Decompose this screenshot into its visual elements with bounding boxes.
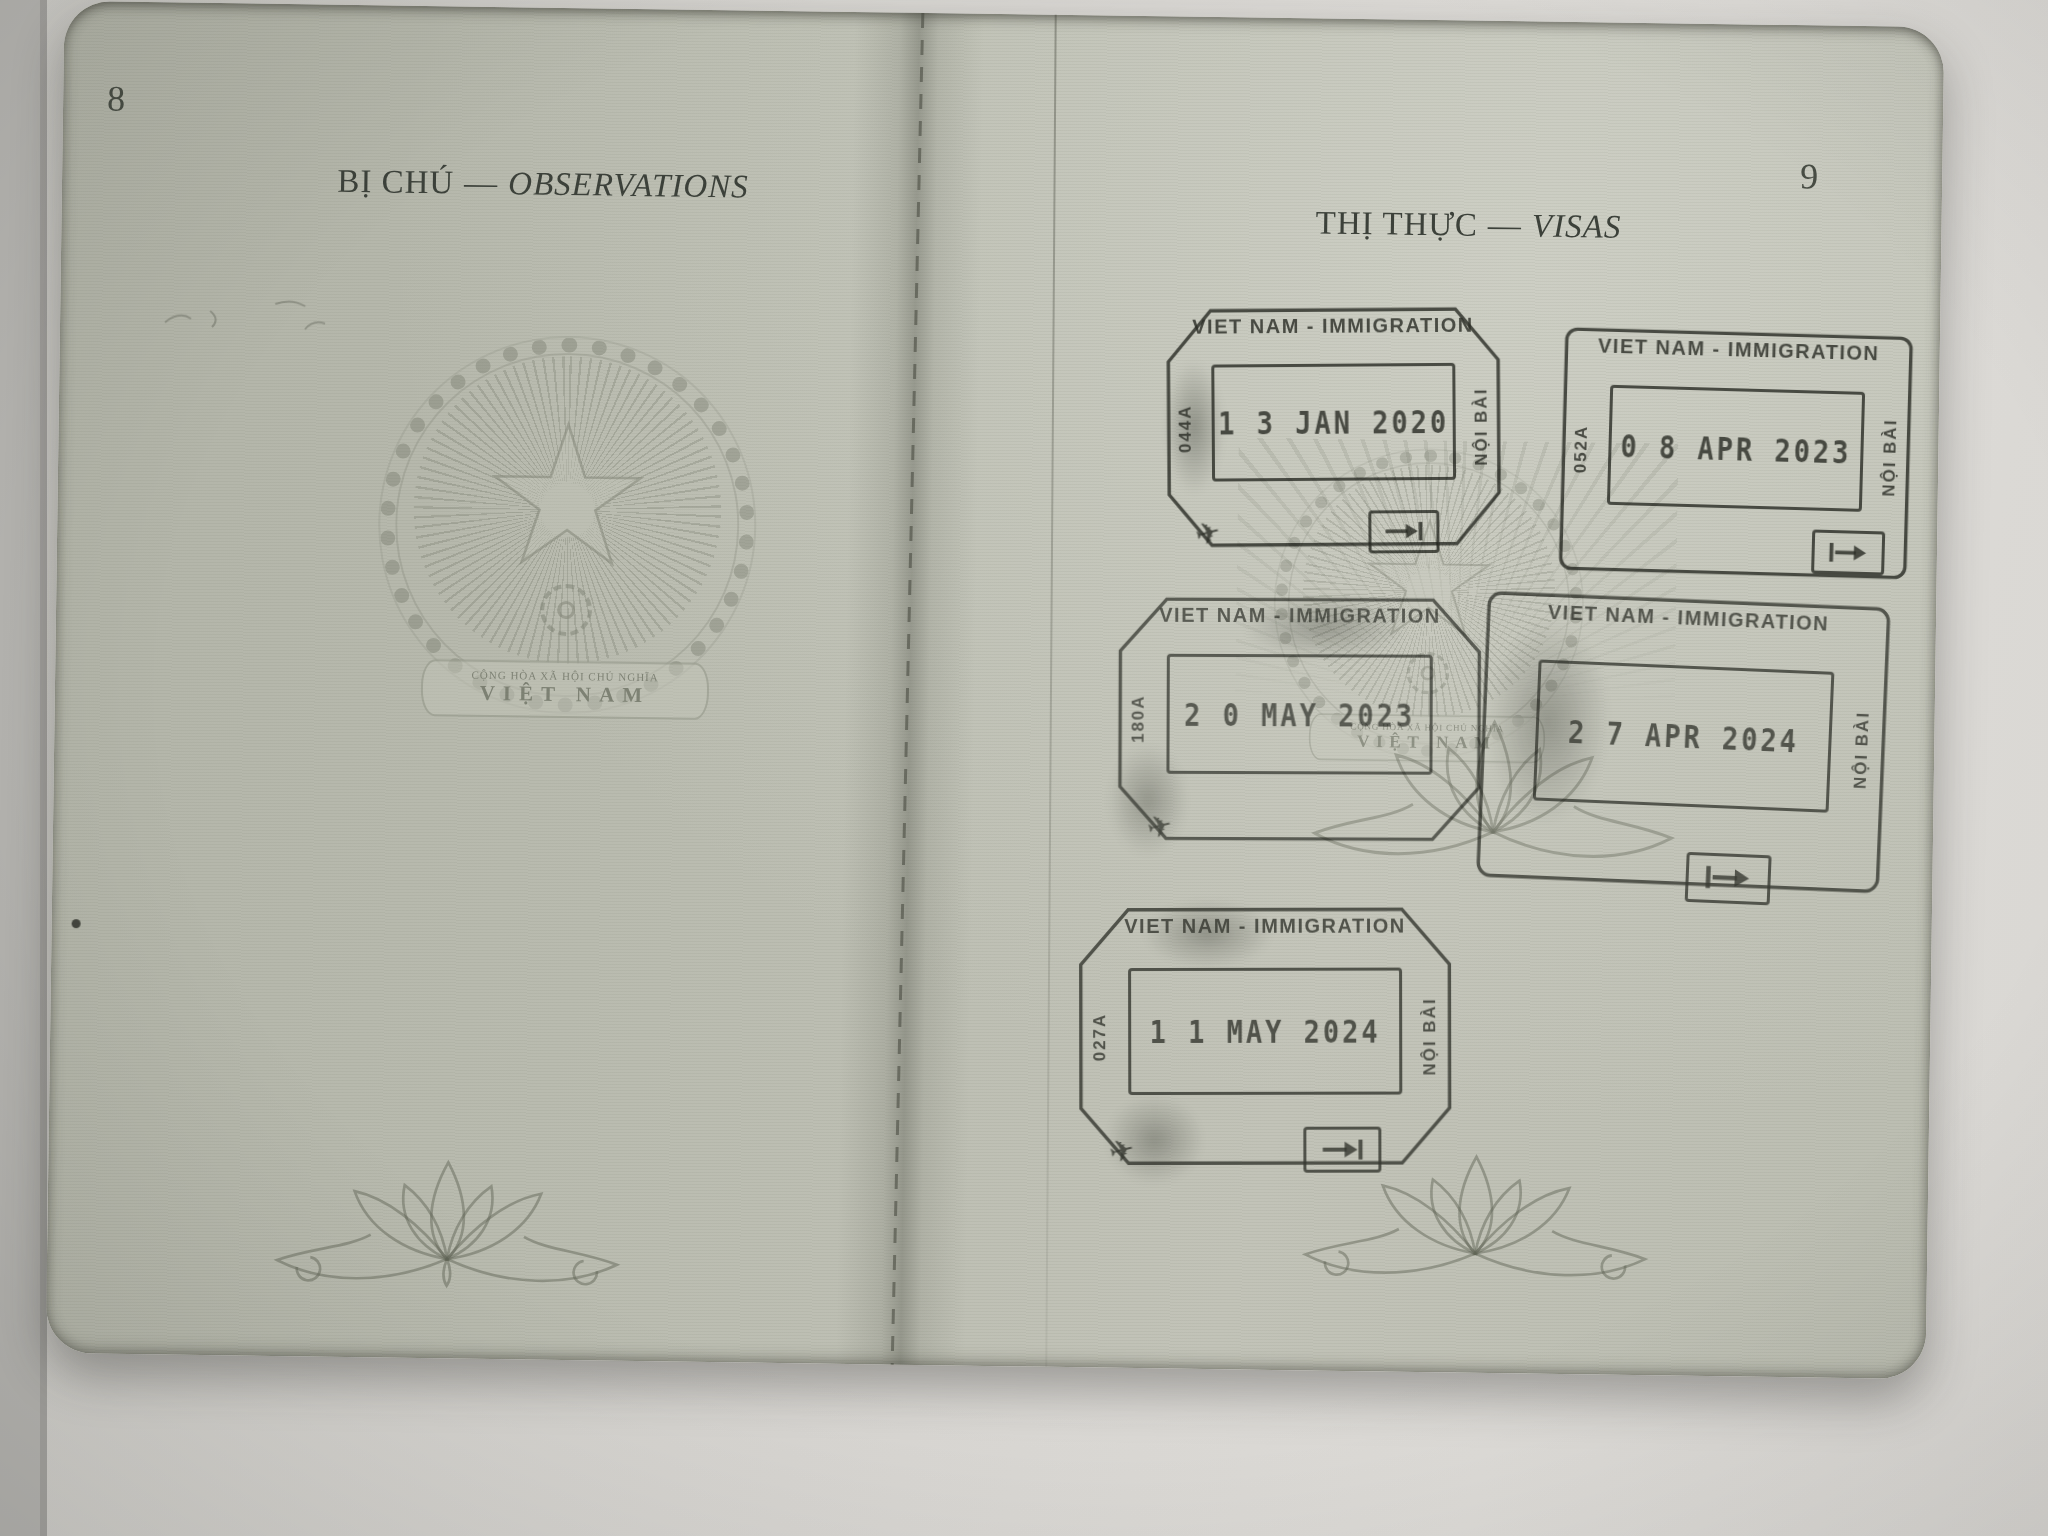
stamp-date-box: 1 1 MAY 2024 [1128, 967, 1402, 1095]
stamp-airport-right: NỘI BÀI [1471, 387, 1492, 465]
stamp-date-box: 2 0 MAY 2023 [1166, 654, 1433, 775]
page-number-8: 8 [107, 78, 126, 120]
page-title-observations: BỊ CHÚ—OBSERVATIONS [318, 163, 768, 206]
immigration-stamp: VIET NAM - IMMIGRATION 1 3 JAN 2020 044A… [1163, 304, 1505, 551]
page-title-vi: THỊ THỰC [1316, 204, 1479, 242]
stamp-date: 2 0 MAY 2023 [1184, 696, 1415, 733]
page-title-vi: BỊ CHÚ [337, 163, 454, 201]
stamp-airport-right: NỘI BÀI [1420, 997, 1440, 1075]
stamp-airport-right: NỘI BÀI [1851, 710, 1874, 789]
stamp-airport-right: NỘI BÀI [1879, 418, 1901, 497]
page-title-separator: — [454, 164, 508, 201]
stamp-date: 1 1 MAY 2024 [1150, 1013, 1381, 1050]
immigration-stamp: VIET NAM - IMMIGRATION 2 0 MAY 2023 180A… [1114, 594, 1485, 845]
stamp-date: 1 3 JAN 2020 [1218, 403, 1449, 441]
stamp-header: VIET NAM - IMMIGRATION [1163, 313, 1503, 340]
immigration-stamp: VIET NAM - IMMIGRATION 2 7 APR 2024 NỘI … [1471, 586, 1895, 898]
ink-speck [72, 919, 81, 928]
page-title-visas: THỊ THỰC—VISAS [1243, 203, 1693, 246]
lotus-watermark-icon [246, 1150, 648, 1306]
entry-arrow-box [1303, 1127, 1381, 1173]
stamp-date-box: 1 3 JAN 2020 [1211, 363, 1457, 482]
immigration-stamp: VIET NAM - IMMIGRATION 0 8 APR 2023 052A… [1555, 323, 1917, 583]
emblem-motto-line2: VIỆT NAM [429, 680, 701, 709]
page-number-9: 9 [1800, 155, 1819, 197]
exit-arrow-box [1811, 529, 1886, 575]
stamp-code-left: 180A [1129, 694, 1149, 743]
exit-arrow-box [1685, 851, 1771, 905]
page-title-separator: — [1478, 207, 1532, 244]
stamp-code-left: 027A [1090, 1012, 1110, 1061]
table-edge-strip [0, 0, 40, 1536]
binding-gutter [836, 12, 985, 1366]
stamp-date: 2 7 APR 2024 [1567, 713, 1799, 759]
arrow-icon [1381, 520, 1426, 542]
entry-arrow-box [1368, 510, 1439, 553]
stamp-header: VIET NAM - IMMIGRATION [1075, 913, 1455, 938]
arrow-icon [1317, 1138, 1368, 1162]
page-title-en: VISAS [1532, 207, 1622, 244]
immigration-stamp: VIET NAM - IMMIGRATION 1 1 MAY 2024 027A… [1075, 903, 1455, 1169]
passport-spread: 8 BỊ CHÚ—OBSERVATIONS ★ CỘNG HÒA XÃ HỘI … [46, 1, 1945, 1379]
stamp-header: VIET NAM - IMMIGRATION [1115, 603, 1485, 628]
page-title-en: OBSERVATIONS [508, 165, 749, 204]
stamp-code-left: 044A [1176, 404, 1196, 453]
stamp-date: 0 8 APR 2023 [1620, 427, 1852, 470]
arrow-icon [1700, 864, 1756, 893]
stamp-code-left: 052A [1571, 424, 1592, 473]
faint-pencil-marks [155, 282, 376, 355]
photo-background: 8 BỊ CHÚ—OBSERVATIONS ★ CỘNG HÒA XÃ HỘI … [0, 0, 2048, 1536]
emblem-banner: CỘNG HÒA XÃ HỘI CHỦ NGHĨA VIỆT NAM [421, 659, 710, 720]
stamp-date-box: 2 7 APR 2024 [1532, 659, 1834, 813]
stamp-date-box: 0 8 APR 2023 [1607, 385, 1866, 512]
star-icon: ★ [481, 401, 654, 593]
arrow-icon [1824, 540, 1872, 564]
national-emblem-watermark: ★ CỘNG HÒA XÃ HỘI CHỦ NGHĨA VIỆT NAM [384, 336, 750, 751]
page-crease [1045, 15, 1056, 1367]
